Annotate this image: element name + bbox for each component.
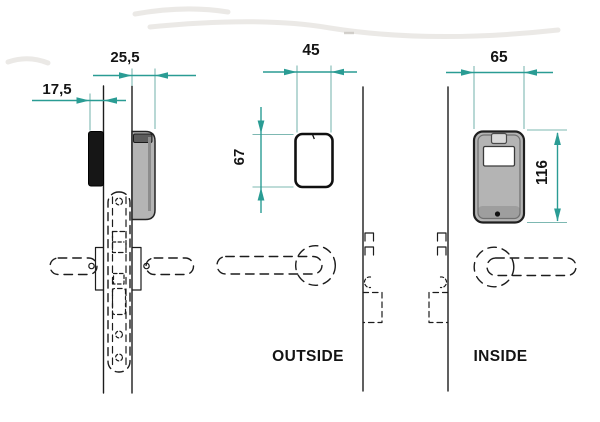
bottom-pin	[495, 211, 500, 216]
inside-elevation-view: 65 116 INSIDE	[429, 49, 576, 391]
dimension-label-65: 65	[490, 49, 508, 66]
mortise-lock-body	[108, 192, 130, 372]
cylinder-arc	[441, 277, 447, 288]
dimension-label-67: 67	[231, 149, 248, 166]
lever-handle-inside-side	[146, 258, 194, 275]
handle-rose-outside	[296, 246, 336, 286]
inside-unit-side-profile	[132, 132, 155, 220]
arrowhead	[77, 97, 90, 104]
drawing-canvas: 17,5 25,5	[0, 0, 600, 422]
cylinder-bracket-upper	[113, 289, 126, 300]
arrowhead	[461, 69, 474, 76]
cylinder-arc	[364, 277, 370, 288]
top-clip	[492, 134, 507, 144]
fixing-hole-mid	[116, 331, 123, 338]
fixing-hole-bottom	[116, 354, 123, 361]
arrowhead	[331, 69, 344, 76]
battery-window	[484, 147, 515, 167]
arrowhead	[554, 209, 561, 222]
scan-artifacts	[8, 9, 558, 63]
lever-handle-inside	[487, 258, 576, 276]
inside-unit-front	[474, 132, 524, 223]
lock-case-hidden-rect	[363, 293, 382, 323]
dimension-67: 67	[231, 107, 294, 213]
side-section-view: 17,5 25,5	[32, 49, 196, 393]
fixing-hole-top	[116, 198, 123, 205]
spindle-follower	[113, 232, 127, 253]
latch-mark-lower	[438, 247, 447, 255]
dimension-drawing: 17,5 25,5	[0, 0, 600, 422]
arrowhead	[258, 121, 265, 134]
arrowhead	[284, 69, 297, 76]
latch-mark-upper	[365, 233, 374, 241]
lock-case-outline	[108, 192, 130, 372]
outside-elevation-view: 45 67 OUTSIDE	[217, 42, 382, 391]
dimension-17-5: 17,5	[32, 81, 126, 131]
arrowhead	[554, 132, 561, 145]
lock-case-hidden-rect	[429, 293, 448, 323]
cylinder-bracket-lower	[113, 304, 126, 315]
outside-view-label: OUTSIDE	[272, 348, 344, 365]
arrowhead	[524, 69, 537, 76]
dimension-label-45: 45	[302, 42, 320, 59]
arrowhead	[104, 97, 117, 104]
arrowhead	[258, 188, 265, 201]
dimension-label-116: 116	[534, 160, 551, 185]
latch-mark-lower	[365, 247, 374, 255]
dimension-label-17-5: 17,5	[42, 81, 71, 98]
lever-handle-outside	[217, 257, 322, 275]
handle-rose-inside	[474, 247, 514, 287]
hub-screw-outside	[89, 263, 94, 268]
cylinder-hole-square	[114, 274, 125, 285]
door-edge-features-inside	[429, 233, 448, 323]
dimension-45: 45	[263, 42, 357, 133]
latch-mark-upper	[438, 233, 447, 241]
dimension-65: 65	[446, 49, 553, 129]
lever-handle-outside-side	[50, 258, 97, 275]
door-edge-features-outside	[363, 233, 382, 323]
outside-unit-side-profile	[89, 132, 104, 187]
outside-unit-front	[296, 134, 333, 187]
inside-view-label: INSIDE	[473, 348, 527, 365]
hub-plate-inside	[132, 248, 141, 291]
dimension-116: 116	[527, 130, 567, 223]
dimension-label-25-5: 25,5	[110, 49, 139, 66]
dimension-25-5: 25,5	[93, 49, 196, 129]
arrowhead	[119, 72, 132, 79]
arrowhead	[155, 72, 168, 79]
